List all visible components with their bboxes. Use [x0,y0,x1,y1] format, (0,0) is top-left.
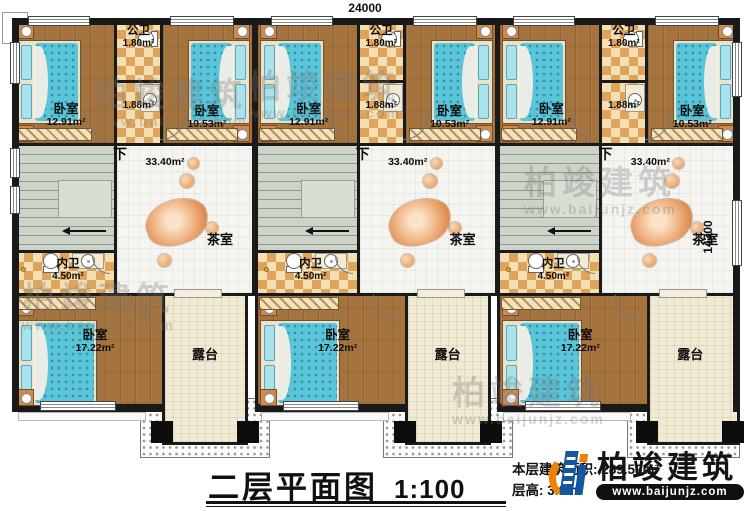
pillow-icon [264,45,275,80]
pillow-icon [506,45,517,80]
nightstand-icon [260,389,277,406]
room-area: 1.80m² [599,38,648,50]
room-label-washroom: 1.88m² [114,100,163,112]
room-area: 10.53m² [649,118,735,130]
window [271,16,333,26]
pillow-icon [478,45,489,80]
room-name: 卧室 [509,102,593,116]
room-area: 17.22m² [293,342,383,354]
room-terrace [162,293,248,445]
stair-direction-arrow [313,230,349,232]
stairs-down-label: 下 [108,146,132,162]
window [525,401,601,411]
room-label-public-bath: 公卫 1.80m² [357,25,406,50]
room-name: 卧室 [50,328,140,342]
window [10,148,20,178]
terrace-column [237,421,259,443]
stair-direction-arrow [70,230,106,232]
room-area: 17.22m² [50,342,140,354]
tea-room-name-label: 茶室 [195,233,245,248]
room-name: 卧室 [535,328,625,342]
room-area: 12.91m² [24,116,108,128]
front-step-ledge [18,412,146,421]
title-underline-thin [206,506,506,507]
room-label-public-bath: 公卫 1.80m² [114,25,163,50]
plan-scale: 1:100 [394,474,466,504]
wardrobe-hatch [259,297,339,310]
window [732,42,742,97]
room-area: 1.88m² [357,100,406,112]
floor-plan-drawing: 卧室 12.91m² 公卫 1.80m² 1.88m² 卧室 10.53m² 下… [0,0,750,511]
room-label-bedroom: 卧室 10.53m² [164,104,250,130]
window [732,200,742,266]
dimension-right: 14300 [701,205,715,269]
terrace-door-threshold [659,289,707,298]
pillow-icon [21,45,32,80]
room-area: 4.50m² [36,271,100,283]
room-area: 4.50m² [521,271,585,283]
wardrobe-hatch [501,128,577,141]
terrace-column [480,421,502,443]
wardrobe-hatch [16,297,96,310]
room-label-bedroom: 卧室 12.91m² [509,102,593,128]
room-label-inner-bath: 内卫 4.50m² [279,258,343,283]
front-step-ledge [503,412,631,421]
wardrobe-hatch [16,128,92,141]
room-name: 内卫 [36,258,100,271]
room-name: 卧室 [164,104,250,118]
stairs-down-label: 下 [351,146,375,162]
room-area: 10.53m² [164,118,250,130]
room-label-bedroom: 卧室 10.53m² [649,104,735,130]
tea-room-area-label: 33.40m² [615,156,685,168]
tea-room-area-label: 33.40m² [130,156,200,168]
pebble-icon [158,254,171,267]
room-label-bedroom: 卧室 12.91m² [24,102,108,128]
window [170,16,234,26]
room-name: 内卫 [521,258,585,271]
window [413,16,477,26]
title-underline [206,501,506,504]
pebble-icon [180,174,194,188]
room-area: 1.80m² [114,38,163,50]
room-area: 1.88m² [599,100,648,112]
nightstand-icon [233,22,250,39]
plan-title-text: 二层平面图 [208,470,378,505]
room-label-inner-bath: 内卫 4.50m² [36,258,100,283]
room-label-inner-bath: 内卫 4.50m² [521,258,585,283]
room-label-bedroom: 卧室 17.22m² [293,328,383,354]
stair-landing [301,180,355,218]
room-area: 10.53m² [407,118,493,130]
room-area: 17.22m² [535,342,625,354]
room-name: 卧室 [407,104,493,118]
room-label-public-bath: 公卫 1.80m² [599,25,648,50]
window [10,186,20,214]
pebble-icon [401,254,414,267]
drain-icon [21,267,26,272]
tea-room-name-label: 茶室 [438,233,488,248]
floorplan-unit: 卧室 12.91m² 公卫 1.80m² 1.88m² 卧室 10.53m² 下… [12,18,255,412]
tea-room-area-label: 33.40m² [373,156,443,168]
terrace-column [636,421,658,443]
room-name: 公卫 [599,25,648,38]
room-name: 内卫 [279,258,343,271]
pebble-icon [423,174,437,188]
window [10,42,20,84]
drain-icon [264,267,269,272]
sheet-fold-icon [276,326,291,400]
wardrobe-hatch [259,128,335,141]
company-logo-name: 柏竣建筑 [597,442,737,487]
company-logo-url: www.baijunjz.com [596,484,744,500]
room-label-bedroom: 卧室 17.22m² [50,328,140,354]
front-step-ledge [261,412,389,421]
room-label-washroom: 1.88m² [599,100,648,112]
window [513,16,575,26]
pillow-icon [720,45,731,80]
terrace-door-threshold [174,289,222,298]
pillow-icon [506,325,517,361]
window [40,401,116,411]
stair-direction-arrow [555,230,591,232]
room-area: 1.88m² [114,100,163,112]
room-terrace [405,293,491,445]
room-label-bedroom: 卧室 10.53m² [407,104,493,130]
stair-landing [543,180,597,218]
room-name: 卧室 [649,104,735,118]
room-name: 卧室 [293,328,383,342]
room-area: 4.50m² [279,271,343,283]
terrace-column [722,421,744,443]
room-name: 卧室 [267,102,351,116]
pillow-icon [264,325,275,361]
stair-landing [58,180,112,218]
room-area: 12.91m² [267,116,351,128]
terrace-label: 露台 [162,348,248,363]
terrace-column [151,421,173,443]
room-label-bedroom: 卧室 12.91m² [267,102,351,128]
nightstand-icon [17,389,34,406]
stairs-down-label: 下 [593,146,617,162]
nightstand-icon [718,22,735,39]
room-area: 12.91m² [509,116,593,128]
room-label-bedroom: 卧室 17.22m² [535,328,625,354]
floorplan-unit: 卧室 12.91m² 公卫 1.80m² 1.88m² 卧室 10.53m² 下… [255,18,498,412]
terrace-label: 露台 [405,348,491,363]
window [283,401,359,411]
terrace-label: 露台 [647,348,733,363]
company-logo-icon [543,441,593,501]
room-area: 1.80m² [357,38,406,50]
room-name: 公卫 [114,25,163,38]
dimension-top: 24000 [310,1,420,15]
window [28,16,90,26]
wardrobe-hatch [501,297,581,310]
room-name: 卧室 [24,102,108,116]
pillow-icon [21,325,32,361]
room-name: 公卫 [357,25,406,38]
terrace-column [394,421,416,443]
nightstand-icon [502,389,519,406]
terrace-door-threshold [417,289,465,298]
pillow-icon [235,45,246,80]
nightstand-icon [476,22,493,39]
room-label-washroom: 1.88m² [357,100,406,112]
window [655,16,719,26]
